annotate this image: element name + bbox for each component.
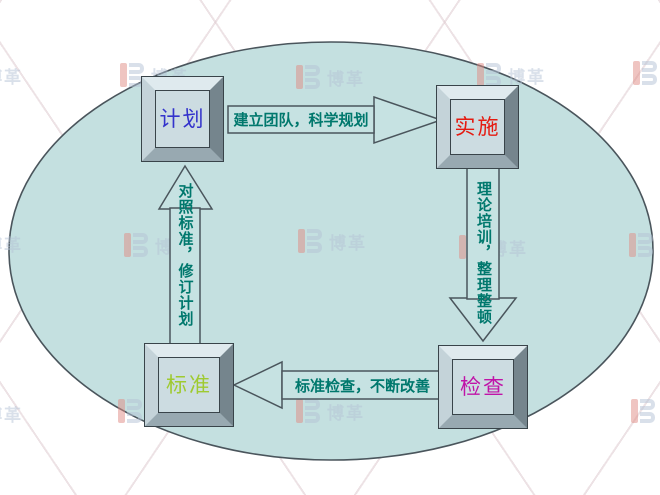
node-check-label: 检查 <box>460 377 506 398</box>
node-do: 实施 <box>437 86 518 168</box>
node-standard-label: 标准 <box>166 375 212 396</box>
node-standard: 标准 <box>145 344 233 426</box>
node-do-label: 实施 <box>455 117 501 138</box>
edge-label-do-to-check: 理论培训，整理整顿 <box>468 170 499 336</box>
node-plan: 计划 <box>142 77 223 161</box>
node-check: 检查 <box>439 346 527 428</box>
cycle-arrows <box>0 0 660 495</box>
edge-label-standard-to-plan: 对照标准，修订计划 <box>170 172 200 338</box>
edge-label-check-to-standard: 标准检查，不断改善 <box>283 371 442 399</box>
edge-label-plan-to-do: 建立团队，科学规划 <box>230 106 372 133</box>
node-plan-label: 计划 <box>160 109 206 130</box>
pdca-cycle-diagram: 博革 博革 博革 博革 博革 博革 博革 博革 博革 博革 博革 博革 博革 博… <box>0 0 660 495</box>
